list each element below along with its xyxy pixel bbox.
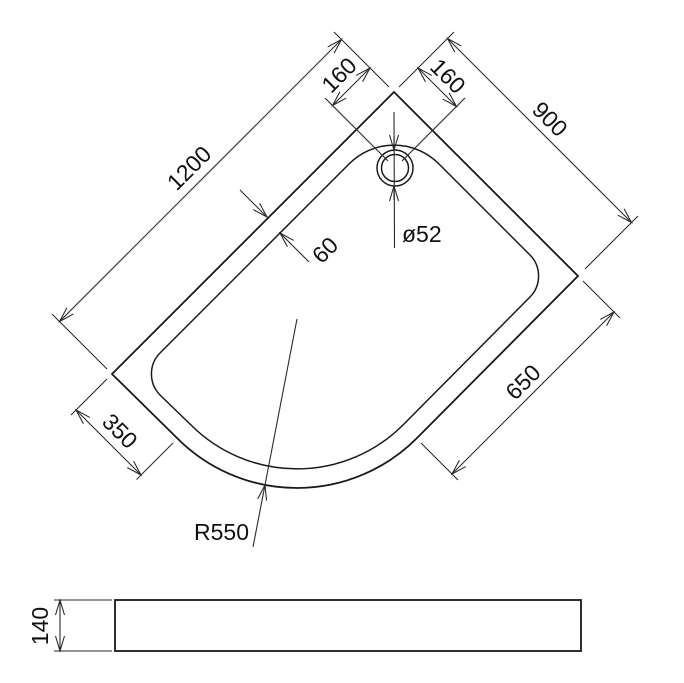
dim-650-line [452, 312, 614, 474]
plan-dimensions: 1200 900 160 160 [52, 32, 638, 547]
dim-drain-label: ø52 [402, 221, 442, 247]
dim-650-extension-top [583, 281, 620, 318]
dim-350-label: 350 [97, 408, 143, 454]
dim-160-left: 160 [316, 52, 388, 161]
tray-outer-outline [112, 92, 578, 488]
dim-900-label: 900 [527, 96, 573, 142]
dim-140: 140 [27, 600, 112, 651]
dim-60-arrow-outer [240, 190, 267, 217]
dim-350-extension-top [71, 379, 107, 415]
dim-140-label: 140 [27, 607, 53, 645]
tray-plan-view [112, 92, 578, 488]
dim-60-label: 60 [307, 232, 343, 268]
dim-160-right-extension [402, 98, 465, 161]
tray-inner-rim [151, 145, 538, 469]
dim-drain-centerline [394, 112, 395, 248]
dim-650: 650 [421, 281, 620, 480]
dim-350: 350 [71, 379, 173, 480]
side-profile-outline [115, 600, 581, 651]
dim-1200-label: 1200 [162, 141, 217, 196]
dim-160-left-label: 160 [316, 52, 362, 98]
dim-160-right-label: 160 [425, 53, 471, 99]
dim-650-extension-bottom [421, 443, 458, 480]
dim-350-extension-bottom [137, 443, 174, 480]
dim-r550-leader [253, 485, 265, 547]
shower-tray-drawing: 1200 900 160 160 [0, 0, 684, 683]
tray-side-view: 140 [27, 600, 581, 651]
dim-900-line [448, 39, 632, 223]
dim-160-right: 160 [402, 53, 471, 161]
dim-650-label: 650 [500, 359, 546, 405]
drawing-canvas: 1200 900 160 160 [0, 0, 684, 683]
dim-1200-extension-left [52, 314, 107, 369]
dim-60-arrow-inner [280, 233, 309, 262]
dim-1200-line [60, 40, 342, 322]
dim-r550: R550 [194, 319, 297, 547]
dim-r550-radius-line [265, 319, 297, 485]
dim-900-extension-right [585, 216, 638, 269]
dim-r550-label: R550 [194, 519, 249, 545]
